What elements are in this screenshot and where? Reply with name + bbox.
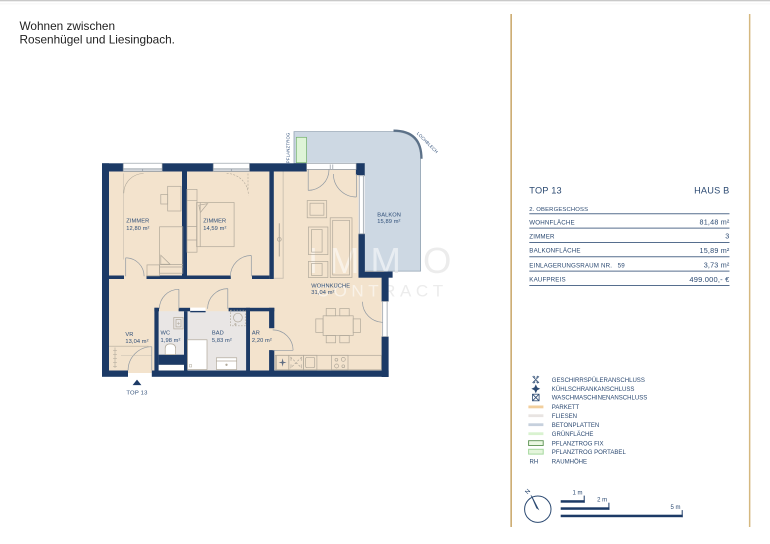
svg-text:VR: VR	[125, 332, 133, 338]
svg-text:ZIMMER: ZIMMER	[529, 233, 555, 240]
svg-text:PFLANZTROG FIX: PFLANZTROG FIX	[552, 441, 604, 447]
svg-text:12,80 m²: 12,80 m²	[126, 226, 149, 232]
svg-text:BETONPLATTEN: BETONPLATTEN	[552, 423, 600, 429]
svg-text:GRÜNFLÄCHE: GRÜNFLÄCHE	[552, 431, 594, 438]
svg-text:N: N	[524, 488, 532, 496]
svg-text:499.000,- €: 499.000,- €	[689, 275, 730, 284]
svg-text:5 m: 5 m	[670, 505, 680, 511]
svg-text:EINLAGERUNGSRAUM NR. 59: EINLAGERUNGSRAUM NR. 59	[529, 262, 625, 269]
svg-text:TOP 13: TOP 13	[126, 390, 148, 396]
svg-text:15,89 m²: 15,89 m²	[377, 219, 400, 225]
svg-text:KÜHLSCHRANKANSCHLUSS: KÜHLSCHRANKANSCHLUSS	[552, 386, 635, 393]
svg-text:GESCHIRRSPÜLERANSCHLUSS: GESCHIRRSPÜLERANSCHLUSS	[552, 377, 645, 384]
svg-text:TOP 13: TOP 13	[529, 185, 562, 195]
svg-text:13,04 m²: 13,04 m²	[125, 339, 148, 345]
svg-text:3,73 m²: 3,73 m²	[704, 261, 730, 270]
svg-text:2. OBERGESCHOSS: 2. OBERGESCHOSS	[529, 207, 588, 213]
svg-text:3: 3	[725, 232, 729, 241]
svg-text:31,04 m²: 31,04 m²	[311, 290, 334, 296]
svg-text:81,48 m²: 81,48 m²	[700, 218, 730, 227]
svg-text:ZIMMER: ZIMMER	[126, 218, 149, 224]
svg-text:KAUFPREIS: KAUFPREIS	[529, 277, 565, 284]
svg-text:WASCHMASCHINENANSCHLUSS: WASCHMASCHINENANSCHLUSS	[552, 396, 648, 402]
svg-text:O: O	[423, 240, 451, 281]
svg-text:5,83 m²: 5,83 m²	[212, 338, 232, 344]
svg-text:WC: WC	[161, 331, 171, 337]
svg-text:2 m: 2 m	[597, 498, 607, 504]
svg-text:BALKON: BALKON	[377, 212, 401, 218]
svg-text:PFLANZTROG: PFLANZTROG	[286, 132, 291, 163]
svg-text:FLIESEN: FLIESEN	[552, 414, 577, 420]
svg-text:2,20 m²: 2,20 m²	[252, 338, 272, 344]
svg-text:PFLANZTROG PORTABEL: PFLANZTROG PORTABEL	[552, 450, 627, 456]
svg-text:RAUMHÖHE: RAUMHÖHE	[552, 459, 587, 466]
svg-text:PARKETT: PARKETT	[552, 405, 580, 411]
svg-text:1 m: 1 m	[572, 491, 582, 497]
svg-text:WOHNKÜCHE: WOHNKÜCHE	[311, 283, 350, 290]
svg-text:HAUS B: HAUS B	[694, 185, 729, 195]
svg-text:BAD: BAD	[212, 331, 224, 337]
svg-text:14,59 m²: 14,59 m²	[203, 226, 226, 232]
svg-text:AR: AR	[252, 331, 260, 337]
svg-text:WOHNFLÄCHE: WOHNFLÄCHE	[529, 219, 575, 226]
svg-text:Rosenhügel und Liesingbach.: Rosenhügel und Liesingbach.	[20, 32, 175, 46]
svg-text:Wohnen zwischen: Wohnen zwischen	[20, 19, 116, 33]
svg-text:BALKONFLÄCHE: BALKONFLÄCHE	[529, 248, 580, 255]
svg-text:15,89 m²: 15,89 m²	[700, 246, 730, 255]
svg-text:ZIMMER: ZIMMER	[203, 218, 226, 224]
svg-text:RH: RH	[530, 460, 539, 466]
svg-text:1,98 m²: 1,98 m²	[161, 338, 181, 344]
